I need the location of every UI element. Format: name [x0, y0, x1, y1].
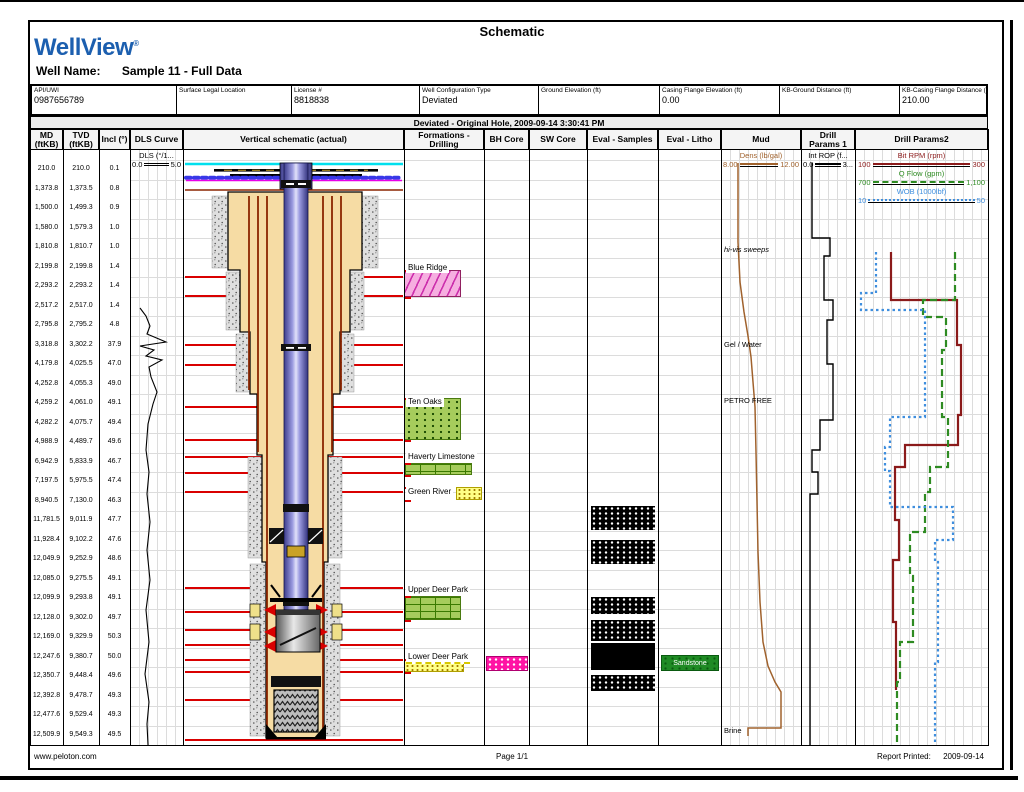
survey-md-value: 12,350.7 — [30, 672, 63, 679]
page-edge-bottom — [0, 776, 1018, 780]
info-cell-label: Well Configuration Type — [420, 86, 538, 94]
survey-md-value: 4,179.8 — [30, 360, 63, 367]
survey-tvd-value: 9,252.9 — [63, 555, 99, 562]
survey-md-value: 3,318.8 — [30, 341, 63, 348]
survey-incl-value: 49.5 — [99, 731, 130, 738]
gridline-horizontal — [130, 609, 988, 610]
gridline-vertical — [972, 150, 973, 746]
survey-md-value: 12,247.6 — [30, 653, 63, 660]
wellbore-banner: Deviated - Original Hole, 2009-09-14 3:3… — [30, 116, 988, 129]
drill-params2-legend: Bit RPM (rpm)100300Q Flow (gpm)7001,100W… — [858, 151, 985, 205]
info-cell-value — [539, 94, 659, 96]
gridline-vertical — [819, 150, 820, 746]
legend-scale: 0.05.0 — [132, 160, 181, 169]
legend-min: 10 — [858, 196, 866, 205]
survey-md-value: 8,940.5 — [30, 497, 63, 504]
gridline-horizontal — [130, 277, 988, 278]
well-info-bar: API/UWI0987656789Surface Legal LocationL… — [30, 84, 988, 116]
survey-md-value: 1,373.8 — [30, 185, 63, 192]
survey-tvd-value: 2,795.2 — [63, 321, 99, 328]
track-border — [63, 129, 64, 746]
column-header-dp2: Drill Params2 — [855, 129, 988, 150]
gridline-horizontal — [130, 687, 988, 688]
column-header-dp1: Drill Params 1 — [801, 129, 855, 150]
info-cell-label: Casing Flange Elevation (ft) — [660, 86, 779, 94]
info-cell: KB-Ground Distance (ft) — [780, 86, 900, 114]
survey-incl-value: 49.1 — [99, 575, 130, 582]
column-header-fm: Formations - Drilling — [404, 129, 484, 150]
survey-tvd-value: 5,975.5 — [63, 477, 99, 484]
track-border — [801, 129, 802, 746]
survey-incl-value: 50.3 — [99, 633, 130, 640]
info-cell: KB-Casing Flange Distance (ft)210.00 — [900, 86, 986, 114]
gridline-horizontal — [130, 316, 988, 317]
track-border — [183, 129, 184, 746]
wellview-logo-text: WellView — [34, 34, 133, 61]
survey-md-value: 12,392.8 — [30, 692, 63, 699]
eval-samples-band — [591, 540, 655, 564]
track-border — [587, 129, 588, 746]
formation-depth-tick — [404, 463, 411, 465]
column-header-dls: DLS Curve — [130, 129, 183, 150]
survey-md-value: 2,293.2 — [30, 282, 63, 289]
survey-incl-value: 0.8 — [99, 185, 130, 192]
survey-incl-value: 49.3 — [99, 692, 130, 699]
survey-incl-value: 46.7 — [99, 458, 130, 465]
wellview-logo: WellView® — [34, 34, 139, 62]
eval-litho-band: Sandstone — [661, 655, 719, 671]
gridline-vertical — [739, 150, 740, 746]
gridline-horizontal — [130, 648, 988, 649]
survey-incl-value: 37.9 — [99, 341, 130, 348]
mud-legend: Dens (lb/gal)8.0012.00 — [723, 151, 799, 169]
info-cell-label: API/UWI — [32, 86, 176, 94]
gridline-horizontal — [130, 472, 988, 473]
survey-incl-value: 49.3 — [99, 711, 130, 718]
info-cell-value: 210.00 — [900, 94, 986, 106]
gridline-horizontal — [130, 355, 988, 356]
survey-md-value: 12,509.9 — [30, 731, 63, 738]
survey-tvd-value: 9,329.9 — [63, 633, 99, 640]
survey-tvd-value: 3,302.2 — [63, 341, 99, 348]
formation-label: Haverty Limestone — [406, 451, 477, 462]
survey-tvd-value: 2,517.0 — [63, 302, 99, 309]
survey-incl-value: 46.3 — [99, 497, 130, 504]
eval-samples-band — [591, 597, 655, 614]
survey-md-value: 12,099.9 — [30, 594, 63, 601]
gridline-horizontal — [130, 531, 988, 532]
survey-md-value: 2,795.8 — [30, 321, 63, 328]
gridline-vertical — [166, 150, 167, 746]
legend-max: 12.00 — [780, 160, 799, 169]
formation-depth-tick — [404, 596, 411, 598]
gridline-vertical — [981, 150, 982, 746]
info-cell-value: 0.00 — [660, 94, 779, 106]
survey-tvd-value: 9,549.3 — [63, 731, 99, 738]
gridline-vertical — [945, 150, 946, 746]
survey-tvd-value: 1,810.7 — [63, 243, 99, 250]
survey-tvd-value: 4,075.7 — [63, 419, 99, 426]
gridline-vertical — [936, 150, 937, 746]
gridline-horizontal — [130, 726, 988, 727]
bh-core-band — [486, 656, 528, 671]
survey-incl-value: 49.7 — [99, 614, 130, 621]
column-header-incl: Incl (°) — [99, 129, 130, 150]
info-cell-label: License # — [292, 86, 419, 94]
info-cell-label: KB-Ground Distance (ft) — [780, 86, 899, 94]
legend-line — [144, 163, 168, 167]
mud-annotation: Brine — [724, 726, 742, 735]
survey-incl-value: 49.4 — [99, 419, 130, 426]
legend-max: 50 — [977, 196, 985, 205]
eval-samples-band — [591, 675, 655, 691]
info-cell-label: KB-Casing Flange Distance (ft) — [900, 86, 986, 94]
legend-scale: 100300 — [858, 160, 985, 169]
track-border — [484, 129, 485, 746]
survey-incl-value: 4.8 — [99, 321, 130, 328]
survey-tvd-value: 9,478.7 — [63, 692, 99, 699]
gridline-horizontal — [130, 706, 988, 707]
survey-tvd-value: 9,380.7 — [63, 653, 99, 660]
gridline-vertical — [846, 150, 847, 746]
well-name-row: Well Name: Sample 11 - Full Data — [36, 64, 242, 78]
gridline-horizontal — [130, 394, 988, 395]
survey-incl-value: 1.4 — [99, 282, 130, 289]
eval-samples-band — [591, 620, 655, 641]
survey-md-value: 4,259.2 — [30, 399, 63, 406]
info-cell: License #8818838 — [292, 86, 420, 114]
formation-label: Lower Deer Park — [406, 651, 470, 664]
gridline-vertical — [954, 150, 955, 746]
track-border — [658, 129, 659, 746]
gridline-horizontal — [130, 238, 988, 239]
info-cell: Ground Elevation (ft) — [539, 86, 660, 114]
gridline-vertical — [891, 150, 892, 746]
column-header-el: Eval - Litho — [658, 129, 721, 150]
legend-min: 0.0 — [803, 160, 813, 169]
footer-printed-date: 2009-09-14 — [943, 752, 984, 761]
info-cell: Casing Flange Elevation (ft)0.00 — [660, 86, 780, 114]
survey-md-value: 7,197.5 — [30, 477, 63, 484]
formation-label: Upper Deer Park — [406, 584, 470, 595]
gridline-vertical — [793, 150, 794, 746]
survey-tvd-value: 9,448.4 — [63, 672, 99, 679]
survey-tvd-value: 4,061.0 — [63, 399, 99, 406]
gridline-vertical — [864, 150, 865, 746]
mud-annotation: hi-vis sweeps — [724, 245, 769, 254]
gridline-vertical — [784, 150, 785, 746]
formation-depth-tick — [404, 297, 411, 299]
report-title: Schematic — [0, 24, 1024, 39]
gridline-vertical — [175, 150, 176, 746]
track-border — [855, 129, 856, 746]
gridline-horizontal — [130, 550, 988, 551]
formation-depth-tick — [404, 440, 411, 442]
survey-tvd-value: 1,373.5 — [63, 185, 99, 192]
legend-line — [815, 163, 840, 167]
gridline-vertical — [139, 150, 140, 746]
legend-max: 300 — [972, 160, 985, 169]
column-header-sw: SW Core — [529, 129, 587, 150]
survey-md-value: 4,252.8 — [30, 380, 63, 387]
survey-md-value: 210.0 — [30, 165, 63, 172]
survey-incl-value: 47.6 — [99, 536, 130, 543]
track-border — [130, 129, 131, 746]
survey-incl-value: 50.0 — [99, 653, 130, 660]
survey-tvd-value: 4,055.3 — [63, 380, 99, 387]
gridline-vertical — [909, 150, 910, 746]
survey-md-value: 1,810.8 — [30, 243, 63, 250]
legend-line — [873, 163, 971, 167]
gridline-vertical — [900, 150, 901, 746]
info-cell: Well Configuration TypeDeviated — [420, 86, 539, 114]
survey-tvd-value: 9,011.9 — [63, 516, 99, 523]
survey-md-value: 12,477.6 — [30, 711, 63, 718]
formation-depth-tick — [404, 672, 411, 674]
gridline-vertical — [837, 150, 838, 746]
column-header-bh: BH Core — [484, 129, 529, 150]
survey-tvd-value: 9,302.0 — [63, 614, 99, 621]
page-edge-top — [0, 0, 1024, 2]
legend-title: DLS (°/1... — [132, 151, 181, 160]
legend-min: 0.0 — [132, 160, 142, 169]
survey-incl-value: 48.6 — [99, 555, 130, 562]
gridline-horizontal — [130, 219, 988, 220]
legend-title: Dens (lb/gal) — [723, 151, 799, 160]
survey-incl-value: 47.4 — [99, 477, 130, 484]
gridline-horizontal — [130, 492, 988, 493]
survey-incl-value: 1.0 — [99, 243, 130, 250]
legend-min: 8.00 — [723, 160, 738, 169]
gridline-vertical — [757, 150, 758, 746]
gridline-horizontal — [130, 453, 988, 454]
survey-md-value: 2,199.8 — [30, 263, 63, 270]
footer-printed: Report Printed: 2009-09-14 — [877, 752, 984, 761]
survey-tvd-value: 9,529.4 — [63, 711, 99, 718]
survey-incl-value: 1.4 — [99, 302, 130, 309]
survey-tvd-value: 5,833.9 — [63, 458, 99, 465]
gridline-vertical — [748, 150, 749, 746]
track-border — [404, 129, 405, 746]
column-header-mud: Mud — [721, 129, 801, 150]
track-border — [99, 129, 100, 746]
survey-md-value: 12,049.9 — [30, 555, 63, 562]
info-cell-value — [177, 94, 291, 96]
survey-incl-value: 49.1 — [99, 594, 130, 601]
mud-annotation: PETRO FREE — [724, 396, 772, 405]
formation-band — [404, 270, 461, 297]
formation-label: Green River — [406, 486, 453, 497]
gridline-vertical — [730, 150, 731, 746]
gridline-vertical — [882, 150, 883, 746]
info-cell-label: Surface Legal Location — [177, 86, 291, 94]
survey-incl-value: 49.6 — [99, 438, 130, 445]
info-cell-value — [780, 94, 899, 96]
survey-incl-value: 0.1 — [99, 165, 130, 172]
page-edge-right — [1010, 20, 1013, 770]
eval-samples-band — [591, 506, 655, 530]
legend-scale: 8.0012.00 — [723, 160, 799, 169]
registered-mark: ® — [133, 39, 138, 48]
mud-annotation: Gel / Water — [724, 340, 762, 349]
legend-min: 100 — [858, 160, 871, 169]
gridline-vertical — [766, 150, 767, 746]
legend-line — [740, 163, 779, 167]
survey-md-value: 12,128.0 — [30, 614, 63, 621]
survey-md-value: 11,928.4 — [30, 536, 63, 543]
gridline-horizontal — [130, 414, 988, 415]
formation-depth-tick — [404, 475, 411, 477]
survey-tvd-value: 7,130.0 — [63, 497, 99, 504]
gridline-horizontal — [130, 433, 988, 434]
survey-tvd-value: 4,025.5 — [63, 360, 99, 367]
info-cell-label: Ground Elevation (ft) — [539, 86, 659, 94]
legend-line — [868, 199, 974, 203]
gridline-horizontal — [130, 258, 988, 259]
legend-min: 700 — [858, 178, 871, 187]
gridline-vertical — [775, 150, 776, 746]
dls-legend: DLS (°/1...0.05.0 — [132, 151, 181, 169]
formation-label: Ten Oaks — [406, 396, 444, 407]
gridline-vertical — [157, 150, 158, 746]
legend-max: 3... — [843, 160, 853, 169]
track-border-right — [988, 129, 989, 746]
gridline-vertical — [810, 150, 811, 746]
survey-tvd-value: 1,579.3 — [63, 224, 99, 231]
footer-page-number: Page 1/1 — [0, 752, 1024, 761]
footer-printed-label: Report Printed: — [877, 752, 931, 761]
survey-md-value: 1,580.0 — [30, 224, 63, 231]
survey-tvd-value: 4,489.7 — [63, 438, 99, 445]
gridline-vertical — [828, 150, 829, 746]
survey-tvd-value: 2,199.8 — [63, 263, 99, 270]
gridline-vertical — [873, 150, 874, 746]
gridline-horizontal — [130, 297, 988, 298]
survey-md-value: 2,517.2 — [30, 302, 63, 309]
gridline-horizontal — [130, 336, 988, 337]
column-header-md: MD (ftKB) — [30, 129, 63, 150]
info-cell: API/UWI0987656789 — [32, 86, 177, 114]
legend-title: Int ROP (f... — [803, 151, 853, 160]
gridline-horizontal — [130, 375, 988, 376]
gridline-vertical — [918, 150, 919, 746]
gridline-horizontal — [130, 589, 988, 590]
column-header-tvd: TVD (ftKB) — [63, 129, 99, 150]
formation-depth-tick — [404, 500, 411, 502]
legend-line — [873, 181, 965, 185]
legend-scale: 1050 — [858, 196, 985, 205]
survey-incl-value: 47.0 — [99, 360, 130, 367]
formation-band — [456, 487, 482, 500]
track-border — [529, 129, 530, 746]
survey-tvd-value: 9,275.5 — [63, 575, 99, 582]
formation-depth-tick — [404, 620, 411, 622]
survey-md-value: 4,282.2 — [30, 419, 63, 426]
track-border — [30, 129, 31, 746]
survey-tvd-value: 210.0 — [63, 165, 99, 172]
column-header-es: Eval - Samples — [587, 129, 658, 150]
well-name-label: Well Name: — [36, 64, 100, 78]
column-header-schem: Vertical schematic (actual) — [183, 129, 404, 150]
gridline-horizontal — [130, 667, 988, 668]
well-name-value: Sample 11 - Full Data — [122, 64, 242, 78]
survey-incl-value: 1.0 — [99, 224, 130, 231]
eval-samples-band — [591, 643, 655, 670]
formation-band — [404, 596, 461, 620]
table-bottom-border — [30, 745, 988, 746]
info-cell-value: Deviated — [420, 94, 538, 106]
gridline-vertical — [927, 150, 928, 746]
gridline-vertical — [148, 150, 149, 746]
legend-title: Bit RPM (rpm) — [858, 151, 985, 160]
legend-max: 5.0 — [171, 160, 181, 169]
survey-md-value: 4,988.9 — [30, 438, 63, 445]
survey-incl-value: 1.4 — [99, 263, 130, 270]
gridline-vertical — [963, 150, 964, 746]
survey-md-value: 11,781.5 — [30, 516, 63, 523]
info-cell-value: 8818838 — [292, 94, 419, 106]
survey-tvd-value: 9,293.8 — [63, 594, 99, 601]
rop-legend: Int ROP (f...0.03... — [803, 151, 853, 169]
survey-incl-value: 49.1 — [99, 399, 130, 406]
survey-incl-value: 47.7 — [99, 516, 130, 523]
gridline-horizontal — [130, 511, 988, 512]
info-cell-value: 0987656789 — [32, 94, 176, 106]
legend-title: Q Flow (gpm) — [858, 169, 985, 178]
legend-scale: 0.03... — [803, 160, 853, 169]
survey-tvd-value: 9,102.2 — [63, 536, 99, 543]
track-border — [721, 129, 722, 746]
info-cell: Surface Legal Location — [177, 86, 292, 114]
legend-max: 1,100 — [966, 178, 985, 187]
legend-scale: 7001,100 — [858, 178, 985, 187]
legend-title: WOB (1000lbf) — [858, 187, 985, 196]
survey-tvd-value: 1,499.3 — [63, 204, 99, 211]
survey-incl-value: 0.9 — [99, 204, 130, 211]
survey-md-value: 12,169.0 — [30, 633, 63, 640]
gridline-horizontal — [130, 570, 988, 571]
formation-label: Blue Ridge — [406, 262, 449, 273]
survey-incl-value: 49.6 — [99, 672, 130, 679]
survey-tvd-value: 2,293.2 — [63, 282, 99, 289]
report-page: Schematic WellView® Well Name: Sample 11… — [0, 0, 1024, 792]
survey-md-value: 12,085.0 — [30, 575, 63, 582]
gridline-horizontal — [130, 628, 988, 629]
survey-md-value: 1,500.0 — [30, 204, 63, 211]
formation-band — [404, 463, 472, 475]
survey-md-value: 6,942.9 — [30, 458, 63, 465]
survey-incl-value: 49.0 — [99, 380, 130, 387]
